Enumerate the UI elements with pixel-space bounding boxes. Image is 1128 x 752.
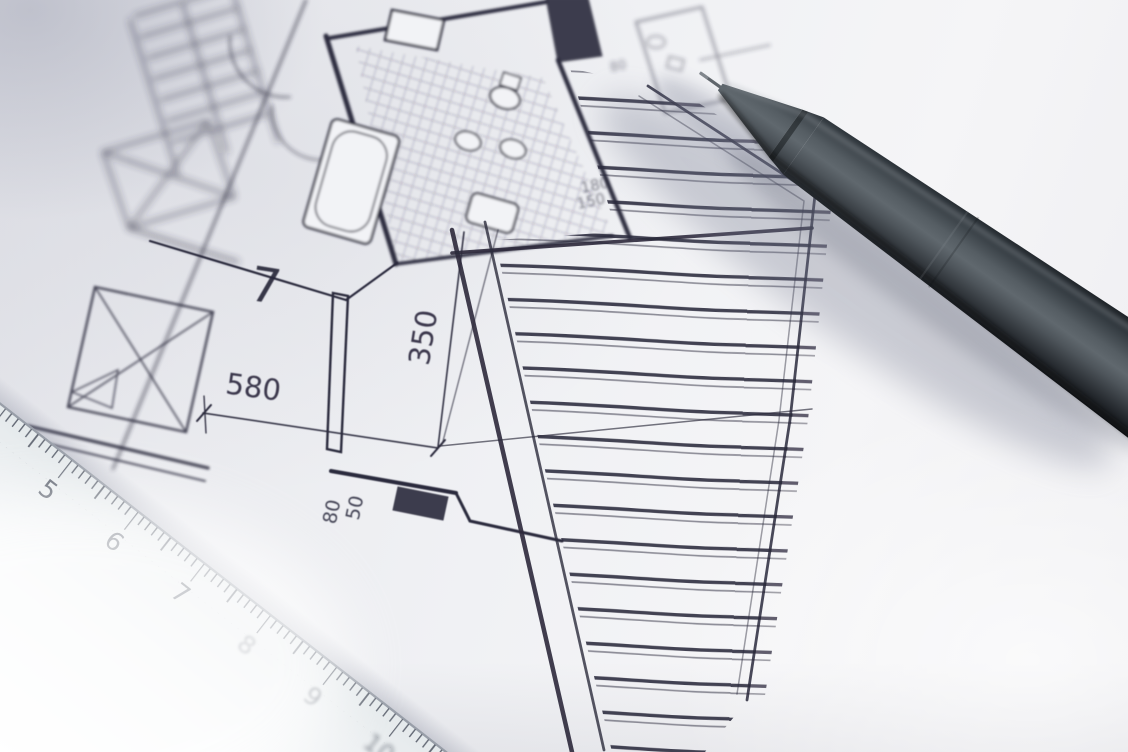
room-number-label: 7 — [246, 256, 285, 316]
dimension-line-580 — [203, 413, 438, 448]
highlight-wash — [0, 495, 350, 752]
washbasin-counter — [385, 10, 444, 50]
bathroom-area — [302, 0, 630, 264]
room-7: 7 580 350 80 50 — [150, 230, 562, 541]
dim-350-label: 350 — [402, 307, 444, 367]
dim-80-label: 80 — [319, 498, 346, 526]
dim-580-label: 580 — [224, 366, 284, 407]
photo-scene: 7 580 350 80 50 180 150 80 — [0, 0, 1128, 752]
dim-50-label: 50 — [342, 494, 369, 522]
scene-svg: 7 580 350 80 50 180 150 80 — [0, 0, 1128, 752]
dim-top-80-label: 80 — [609, 58, 628, 76]
column-symbol — [327, 293, 348, 452]
deck-top-label: 80 — [609, 58, 628, 76]
